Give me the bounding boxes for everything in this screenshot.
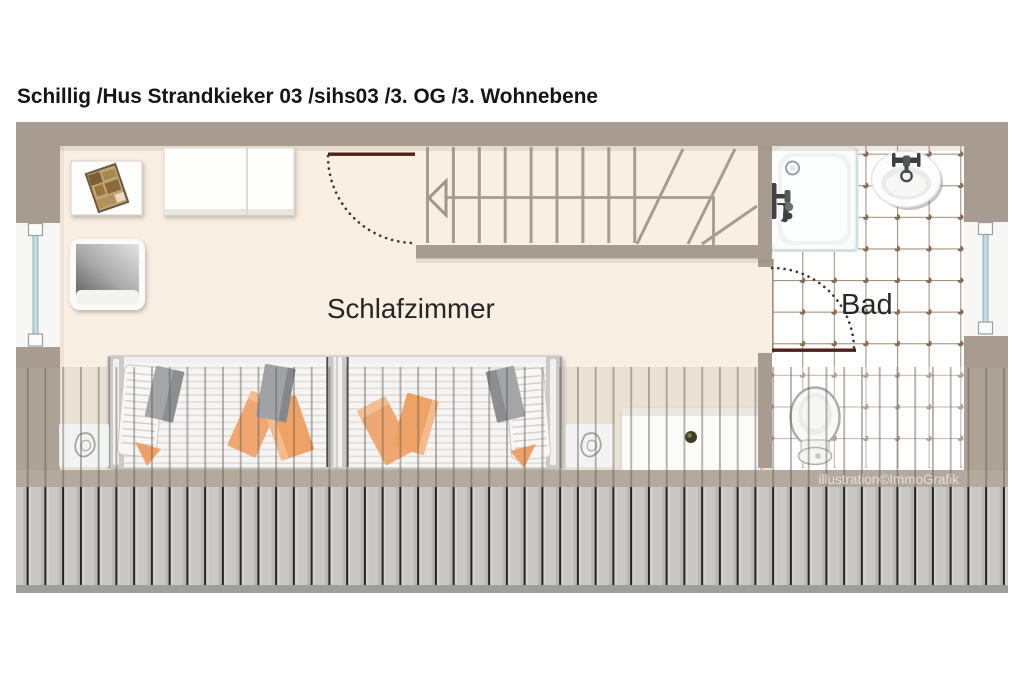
svg-text:Schillig /Hus Strandkieker 03: Schillig /Hus Strandkieker 03 /sihs03 /3…: [17, 85, 598, 108]
svg-text:Schlafzimmer: Schlafzimmer: [327, 293, 495, 324]
svg-text:Bad: Bad: [841, 289, 893, 321]
svg-text:illustration©ImmoGrafik: illustration©ImmoGrafik: [819, 472, 960, 487]
